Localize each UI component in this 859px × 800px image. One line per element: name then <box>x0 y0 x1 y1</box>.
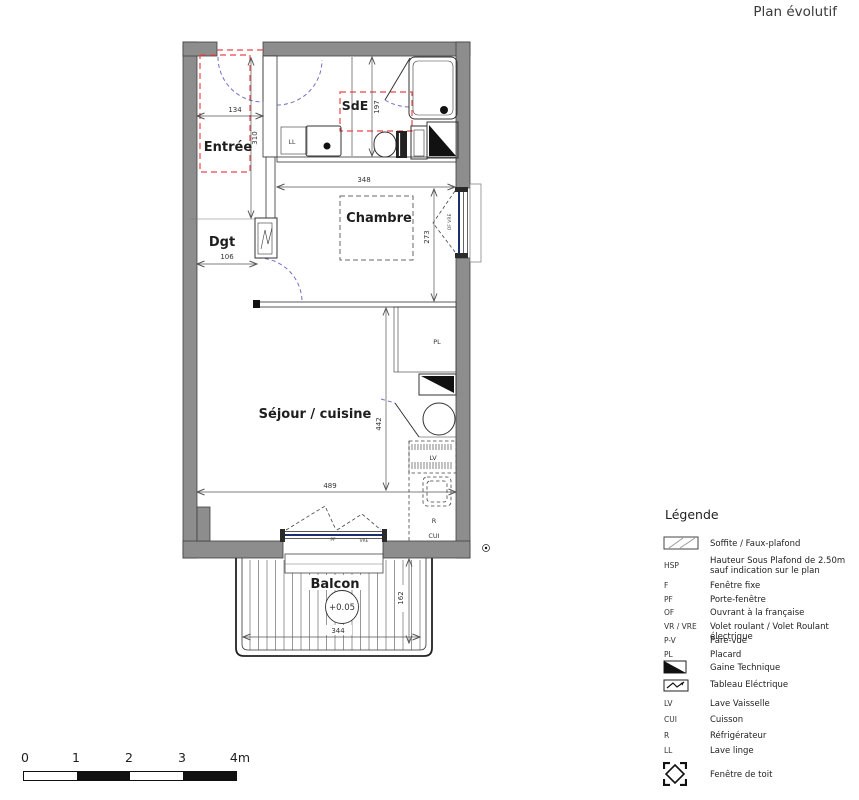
scale-tick-3: 3 <box>178 750 186 765</box>
scale-tick-4: 4m <box>230 750 250 765</box>
legend-row-gaine: Gaine Technique <box>655 660 859 676</box>
porte-fenetre-swing-left <box>286 506 336 530</box>
doors <box>218 57 410 403</box>
dim-sejour-width: 489 <box>197 482 456 492</box>
dim-chambre-width: 348 <box>277 176 455 187</box>
sde-door-swing <box>385 100 410 107</box>
dim-entree-width: 134 <box>197 106 263 116</box>
legend-row-soffit: Soffite / Faux-plafond <box>655 536 859 552</box>
dim-sejour-depth: 442 <box>375 308 386 490</box>
pf-label: PF <box>330 537 336 543</box>
soffit-icon <box>663 536 699 555</box>
legend-row-roof-window: Fenêtre de toit <box>655 762 859 786</box>
bed-outline <box>340 196 413 260</box>
plan-title: Plan évolutif <box>753 4 837 20</box>
svg-text:489: 489 <box>323 482 336 490</box>
cooking-label: CUI <box>428 532 439 540</box>
floor-plan: LV R CUI PL Balcon +0.05 <box>0 0 550 700</box>
sde-door-leaf <box>385 58 410 100</box>
living-door-swing <box>258 258 302 302</box>
legend-row-lv: LV Lave Vaisselle <box>655 699 859 715</box>
floor-plan-page: Plan évolutif <box>0 0 859 800</box>
washbasin-drain <box>324 143 331 150</box>
washing-machine-label: LL <box>289 139 296 146</box>
gaine-technique-kitchen <box>419 374 456 395</box>
legend: Légende Soffite / Faux-plafond HSP Haute… <box>655 503 859 795</box>
porte-fenetre: PF VRE <box>280 506 387 544</box>
room-label-sde: SdE <box>342 98 369 113</box>
shower-drain <box>440 106 448 114</box>
svg-text:442: 442 <box>375 417 383 430</box>
svg-text:348: 348 <box>357 176 370 184</box>
dim-sde-depth: 197 <box>372 57 381 156</box>
placard <box>394 307 456 372</box>
placard-label: PL <box>433 338 441 346</box>
vre-label: VRE <box>359 538 368 544</box>
tableau-electrique-box <box>255 218 277 258</box>
entry-door-swing <box>218 57 263 102</box>
legend-row-cui: CUI Cuisson <box>655 715 859 731</box>
washbasin <box>306 126 341 156</box>
scale-tick-2: 2 <box>125 750 133 765</box>
legend-row-hsp: HSP Hauteur Sous Plafond de 2.50m sauf i… <box>655 556 859 572</box>
room-label-entree: Entrée <box>204 140 253 155</box>
kitchen-sink <box>423 403 455 435</box>
legend-row-tableau: Tableau Eléctrique <box>655 678 859 694</box>
bathroom-cabinet <box>411 126 427 159</box>
dishwasher-label: LV <box>429 454 437 462</box>
counter-edge <box>395 403 419 437</box>
hall-door-swing <box>277 60 322 105</box>
svg-text:134: 134 <box>228 106 242 114</box>
dim-balcon-width: 344 <box>243 625 420 637</box>
scale-tick-0: 0 <box>21 750 29 765</box>
room-label-chambre: Chambre <box>346 211 412 226</box>
balcony-level: +0.05 <box>329 603 355 613</box>
roof-window-icon <box>663 762 687 790</box>
room-label-balcon: Balcon <box>310 577 359 592</box>
window-shutter-box <box>470 184 481 262</box>
svg-text:162: 162 <box>397 591 405 604</box>
tableau-electrique-icon <box>663 678 690 697</box>
gaine-technique-icon <box>663 660 688 679</box>
fridge-label: R <box>432 517 437 525</box>
kitchen-fixtures: LV R CUI PL <box>394 307 456 541</box>
dim-balcon-depth: 162 <box>395 559 409 643</box>
svg-text:197: 197 <box>373 100 381 113</box>
shower <box>409 57 457 119</box>
chambre-window: OF VRE <box>433 184 481 262</box>
scale-bar: 0 1 2 3 4m <box>23 750 237 784</box>
interior-partitions <box>253 56 456 308</box>
dim-chambre-depth: 273 <box>423 189 434 301</box>
toilet <box>374 131 407 158</box>
partition-end-cap <box>253 300 260 308</box>
svg-text:106: 106 <box>220 253 234 261</box>
kitchen-dash <box>381 399 395 403</box>
svg-text:344: 344 <box>331 627 345 635</box>
legend-row-r: R Réfrigérateur <box>655 731 859 747</box>
scale-bar-segments <box>23 771 237 781</box>
room-label-dgt: Dgt <box>209 235 235 250</box>
gaine-technique-sde <box>427 122 458 158</box>
dishwasher: LV <box>409 441 456 473</box>
legend-row-ll: LL Lave linge <box>655 746 859 762</box>
room-label-sejour: Séjour / cuisine <box>259 407 372 422</box>
balcony-threshold <box>285 554 383 573</box>
dim-dgt-width: 106 <box>197 253 257 264</box>
hob <box>423 477 451 506</box>
window-label: OF VRE <box>447 214 453 231</box>
svg-text:273: 273 <box>423 230 431 243</box>
porte-fenetre-swing-right <box>337 514 381 530</box>
scale-tick-1: 1 <box>72 750 80 765</box>
legend-heading: Légende <box>665 507 719 522</box>
